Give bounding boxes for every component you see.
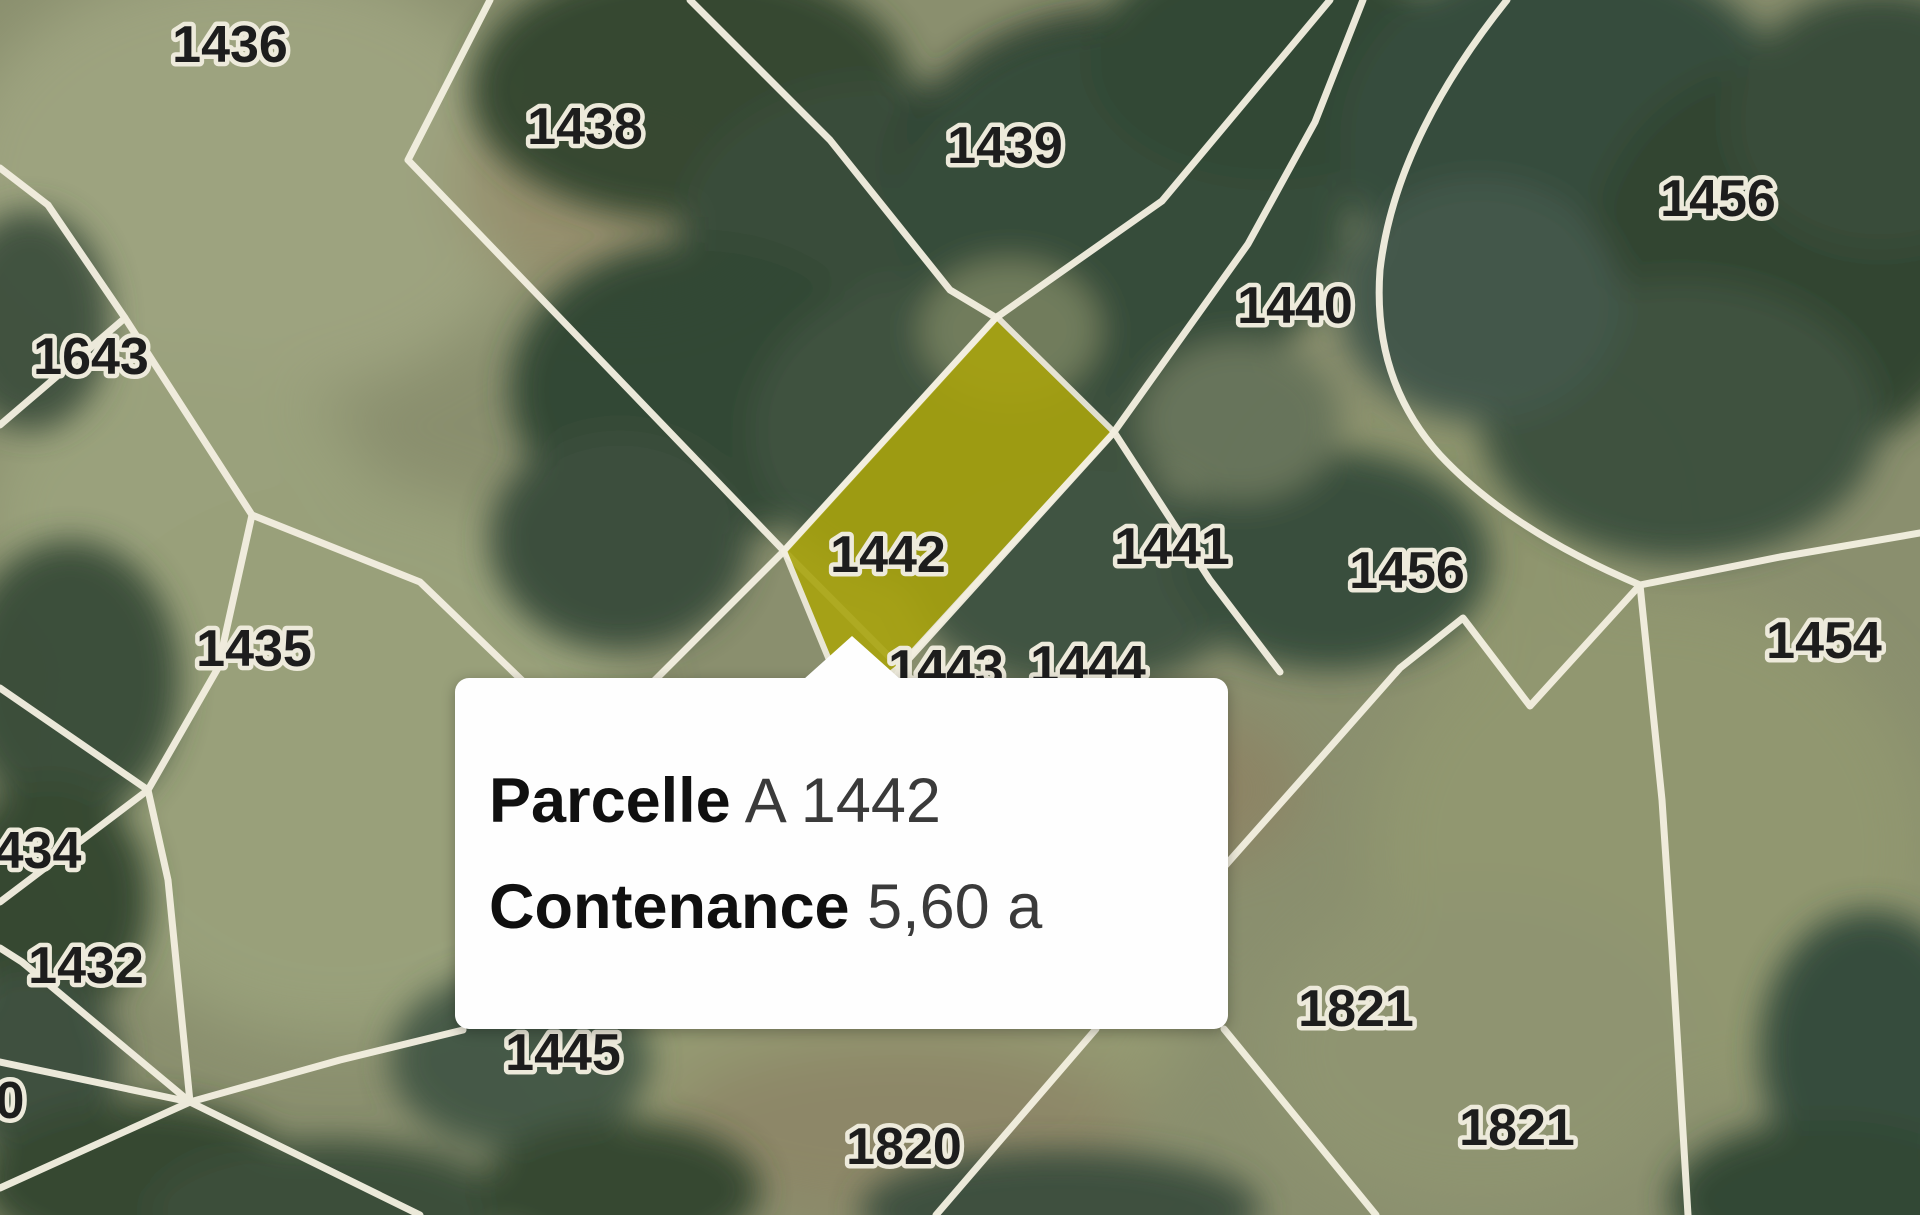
parcel-value: A 1442 — [745, 766, 941, 836]
parcel-number-label: 1821 — [1298, 980, 1414, 1038]
parcel-number-label: 1432 — [28, 937, 144, 995]
popup-parcel-line: Parcelle A 1442 — [489, 748, 1208, 854]
parcel-number-label: 1435 — [196, 620, 312, 678]
parcel-info-popup: Parcelle A 1442 Contenance 5,60 a — [455, 678, 1228, 1029]
parcel-number-label: 1821 — [1459, 1099, 1575, 1157]
map-viewport: 1436143814391456144016431441145614421435… — [0, 0, 1920, 1215]
parcel-number-label: 1441 — [1114, 518, 1230, 576]
parcel-number-label: 1456 — [1660, 170, 1776, 228]
parcel-number-label: 0 — [0, 1072, 24, 1130]
contenance-label: Contenance — [489, 872, 850, 942]
parcel-label: Parcelle — [489, 766, 731, 836]
parcel-number-label: 1643 — [33, 328, 149, 386]
parcel-number-label: 434 — [0, 822, 81, 880]
parcel-number-label: 1439 — [947, 117, 1063, 175]
contenance-value: 5,60 a — [867, 872, 1042, 942]
parcel-number-label: 1440 — [1237, 277, 1353, 335]
popup-area-line: Contenance 5,60 a — [489, 854, 1208, 960]
parcel-number-label: 1442 — [830, 526, 946, 584]
cadastral-aerial-map[interactable]: 1436143814391456144016431441145614421435… — [0, 0, 1920, 1215]
parcel-number-label: 1820 — [846, 1118, 962, 1176]
parcel-number-label: 1436 — [172, 16, 288, 74]
parcel-number-label: 1456 — [1349, 542, 1465, 600]
parcel-number-label: 1454 — [1766, 612, 1882, 670]
parcel-number-label: 1438 — [527, 98, 643, 156]
parcel-number-label: 1445 — [505, 1024, 621, 1082]
